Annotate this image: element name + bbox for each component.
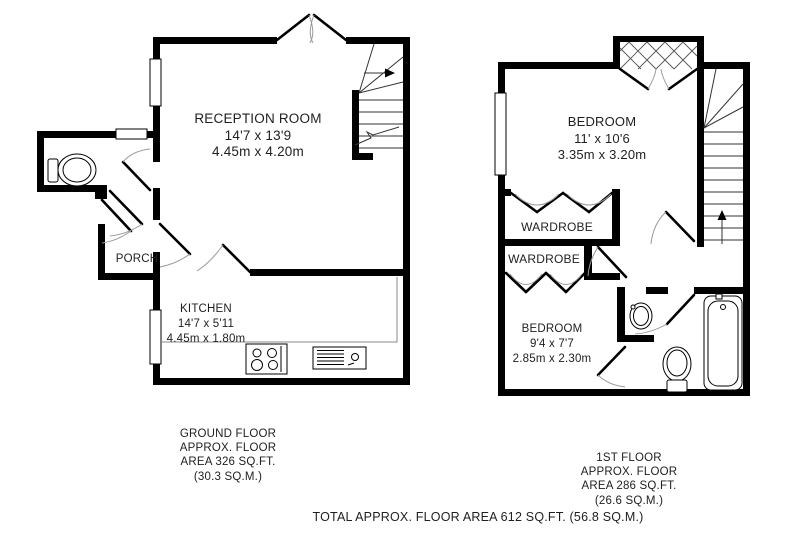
caption-line: GROUND FLOOR bbox=[180, 427, 277, 441]
room-size-imperial: 11' x 10'6 bbox=[558, 131, 647, 148]
wc-toilet-icon bbox=[48, 154, 96, 186]
porch-label: PORCH bbox=[116, 252, 159, 267]
room-size-imperial: 14'7 x 5'11 bbox=[167, 317, 246, 332]
kitchen-label: KITCHEN 14'7 x 5'11 4.45m x 1.80m bbox=[167, 302, 246, 347]
first-floor-caption: 1ST FLOOR APPROX. FLOOR AREA 286 SQ.FT. … bbox=[581, 451, 678, 508]
ground-floor-caption: GROUND FLOOR APPROX. FLOOR AREA 326 SQ.F… bbox=[180, 427, 277, 484]
caption-line: AREA 286 SQ.FT. bbox=[581, 479, 678, 493]
bedroom-back-label: BEDROOM 9'4 x 7'7 2.85m x 2.30m bbox=[513, 322, 592, 367]
room-name: WARDROBE bbox=[508, 252, 580, 266]
room-size-metric: 2.85m x 2.30m bbox=[513, 352, 592, 367]
room-name: PORCH bbox=[116, 252, 159, 267]
first-floor-staircase bbox=[704, 69, 743, 244]
wardrobe-1-label: WARDROBE bbox=[521, 220, 593, 234]
caption-line: APPROX. FLOOR bbox=[180, 441, 277, 455]
bathtub-icon bbox=[704, 294, 742, 390]
floorplan-page: RECEPTION ROOM 14'7 x 13'9 4.45m x 4.20m… bbox=[0, 0, 800, 536]
cupboard-hatch bbox=[620, 42, 697, 69]
floorplan-drawing bbox=[0, 0, 800, 536]
room-size-metric: 3.35m x 3.20m bbox=[558, 147, 647, 164]
bathroom-fixtures bbox=[630, 294, 742, 392]
room-size-metric: 4.45m x 4.20m bbox=[194, 144, 321, 161]
stairs-up-arrow-icon bbox=[718, 210, 727, 244]
hob-icon bbox=[246, 344, 287, 374]
caption-line: 1ST FLOOR bbox=[581, 451, 678, 465]
first-floor-windows bbox=[495, 93, 506, 175]
caption-line: TOTAL APPROX. FLOOR AREA 612 SQ.FT. (56.… bbox=[313, 510, 644, 525]
bedroom-front-label: BEDROOM 11' x 10'6 3.35m x 3.20m bbox=[558, 114, 647, 164]
total-area-caption: TOTAL APPROX. FLOOR AREA 612 SQ.FT. (56.… bbox=[313, 510, 644, 525]
room-name: BEDROOM bbox=[558, 114, 647, 131]
room-size-imperial: 14'7 x 13'9 bbox=[194, 128, 321, 145]
ground-floor-staircase bbox=[355, 44, 403, 148]
room-name: KITCHEN bbox=[167, 302, 246, 317]
room-name: RECEPTION ROOM bbox=[194, 111, 321, 128]
room-name: WARDROBE bbox=[521, 220, 593, 234]
basin-icon bbox=[630, 303, 652, 329]
reception-room-label: RECEPTION ROOM 14'7 x 13'9 4.45m x 4.20m bbox=[194, 111, 321, 161]
caption-line: AREA 326 SQ.FT. bbox=[180, 455, 277, 469]
toilet-icon bbox=[663, 347, 691, 392]
caption-line: (30.3 SQ.M.) bbox=[180, 470, 277, 484]
room-size-metric: 4.45m x 1.80m bbox=[167, 332, 246, 347]
caption-line: (26.6 SQ.M.) bbox=[581, 494, 678, 508]
room-name: BEDROOM bbox=[513, 322, 592, 337]
room-size-imperial: 9'4 x 7'7 bbox=[513, 337, 592, 352]
wardrobe-2-label: WARDROBE bbox=[508, 252, 580, 266]
caption-line: APPROX. FLOOR bbox=[581, 465, 678, 479]
sink-icon bbox=[313, 347, 366, 369]
